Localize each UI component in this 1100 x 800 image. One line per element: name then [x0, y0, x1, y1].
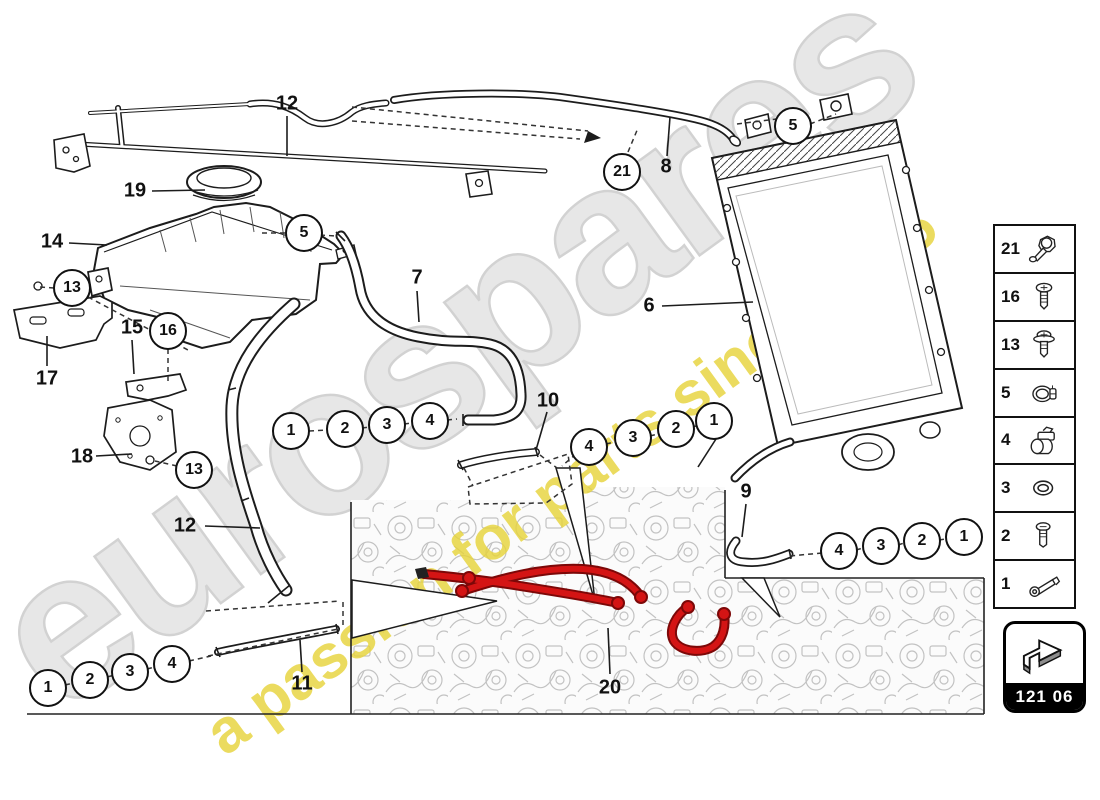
flanged-screw-icon	[1027, 325, 1061, 365]
part-label-6: 6	[643, 295, 654, 318]
legend-row-16[interactable]: 16	[995, 272, 1074, 320]
part-label-17: 17	[36, 368, 58, 391]
hose-clamp-icon	[1027, 373, 1061, 413]
callout-circle-4: 4	[153, 645, 191, 683]
legend-label: 4	[1001, 430, 1026, 450]
parts-diagram-page: eurospares a passion for parts since 198…	[0, 0, 1100, 800]
legend-label: 3	[1001, 478, 1026, 498]
spring-clip-icon	[1027, 229, 1061, 269]
part-label-12: 12	[174, 515, 196, 538]
part-label-9: 9	[740, 481, 751, 504]
callout-circle-21: 21	[603, 153, 641, 191]
callout-circle-4: 4	[570, 428, 608, 466]
seal-ring-icon	[1027, 468, 1061, 508]
callout-circle-5: 5	[285, 214, 323, 252]
callout-circle-3: 3	[614, 419, 652, 457]
callout-circle-3: 3	[862, 527, 900, 565]
pipe-clip-icon	[1027, 420, 1061, 460]
callout-circle-5: 5	[774, 107, 812, 145]
callout-circle-1: 1	[945, 518, 983, 556]
legend-label: 21	[1001, 239, 1026, 259]
legend-row-21[interactable]: 21	[995, 226, 1074, 272]
legend-row-3[interactable]: 3	[995, 463, 1074, 511]
callout-circle-2: 2	[657, 410, 695, 448]
callout-circle-1: 1	[695, 402, 733, 440]
legend-label: 13	[1001, 335, 1026, 355]
callout-circle-13: 13	[175, 451, 213, 489]
legend-label: 1	[1001, 574, 1026, 594]
part-label-19: 19	[124, 180, 146, 203]
callout-circle-1: 1	[272, 412, 310, 450]
callout-circle-2: 2	[71, 661, 109, 699]
part-label-10: 10	[537, 390, 559, 413]
part-label-15: 15	[121, 317, 143, 340]
callout-circle-3: 3	[111, 653, 149, 691]
screw-icon	[1027, 277, 1061, 317]
part-label-7: 7	[411, 267, 422, 290]
part-label-20: 20	[599, 677, 621, 700]
legend-row-1[interactable]: 1	[995, 559, 1074, 607]
callout-circle-16: 16	[149, 312, 187, 350]
callout-circle-4: 4	[411, 402, 449, 440]
legend-label: 16	[1001, 287, 1026, 307]
legend-label: 5	[1001, 383, 1026, 403]
callout-circle-1: 1	[29, 669, 67, 707]
part-label-8: 8	[660, 156, 671, 179]
callout-circle-13: 13	[53, 269, 91, 307]
part-label-11: 11	[291, 673, 312, 696]
diagram-code: 121 06	[1006, 683, 1083, 710]
callout-circle-2: 2	[326, 410, 364, 448]
fastener-legend-sidebar: 21 16 13	[993, 224, 1076, 609]
forward-arrow-icon	[1006, 624, 1083, 683]
part-label-18: 18	[71, 446, 93, 469]
diagram-code-box[interactable]: 121 06	[1003, 621, 1086, 713]
radiator-drawing	[712, 94, 962, 478]
legend-row-5[interactable]: 5	[995, 368, 1074, 416]
part-label-12: 12	[276, 93, 298, 116]
legend-row-13[interactable]: 13	[995, 320, 1074, 368]
legend-row-4[interactable]: 4	[995, 416, 1074, 464]
part-label-14: 14	[41, 231, 63, 254]
banjo-bolt-icon	[1027, 564, 1061, 604]
callout-circle-4: 4	[820, 532, 858, 570]
legend-row-2[interactable]: 2	[995, 511, 1074, 559]
callout-circle-3: 3	[368, 406, 406, 444]
bolt-icon	[1027, 516, 1061, 556]
callout-circle-2: 2	[903, 522, 941, 560]
legend-label: 2	[1001, 526, 1026, 546]
